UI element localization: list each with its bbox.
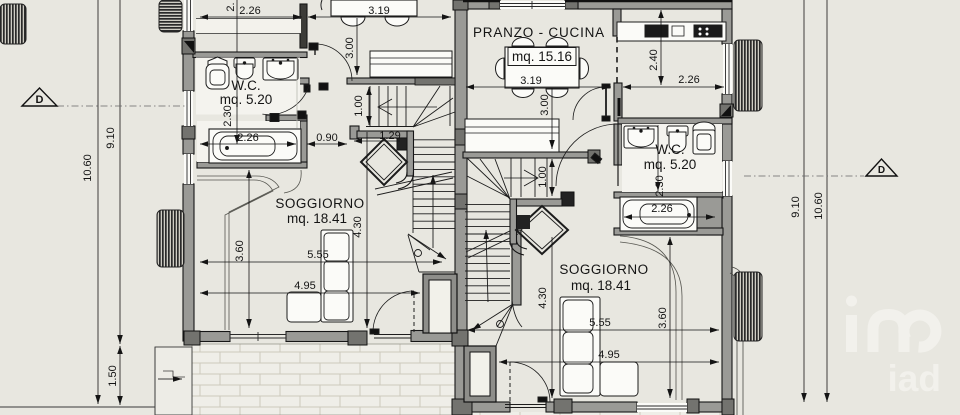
svg-text:mq. 5.20: mq. 5.20 [220,92,273,107]
svg-text:D: D [36,94,44,106]
svg-text:10.60: 10.60 [82,154,94,182]
svg-text:2.40: 2.40 [648,49,660,70]
svg-text:1.00: 1.00 [353,95,365,116]
svg-text:1.00: 1.00 [537,166,549,187]
svg-text:3.00: 3.00 [344,37,356,58]
svg-text:W.C.: W.C. [655,142,684,157]
svg-text:mq. 18.41: mq. 18.41 [571,278,631,293]
svg-text:3.60: 3.60 [234,240,246,261]
svg-text:PRANZO - CUCINA: PRANZO - CUCINA [473,25,605,40]
svg-text:2.26: 2.26 [678,74,699,86]
svg-text:1.50: 1.50 [107,365,119,386]
svg-text:1.29: 1.29 [379,130,400,142]
svg-text:9.10: 9.10 [790,196,802,217]
svg-text:SOGGIORNO: SOGGIORNO [559,262,648,277]
svg-text:W.C.: W.C. [231,78,260,93]
svg-text:4.95: 4.95 [598,349,619,361]
svg-text:mq. 5.20: mq. 5.20 [644,157,697,172]
svg-text:10.60: 10.60 [813,192,825,220]
svg-text:5.55: 5.55 [589,317,610,329]
svg-text:2.: 2. [225,2,237,11]
svg-text:2.30: 2.30 [654,175,666,196]
svg-text:9.10: 9.10 [105,127,117,148]
svg-text:mq. 15.16: mq. 15.16 [512,49,572,64]
svg-text:iad: iad [888,358,941,399]
svg-text:SOGGIORNO: SOGGIORNO [275,196,364,211]
svg-text:0.90: 0.90 [316,132,337,144]
svg-text:4.30: 4.30 [352,216,364,237]
svg-text:3.19: 3.19 [368,5,389,17]
svg-text:mq. 18.41: mq. 18.41 [287,211,347,226]
svg-text:4.30: 4.30 [537,287,549,308]
svg-text:3.19: 3.19 [520,75,541,87]
svg-text:2.26: 2.26 [651,203,672,215]
svg-text:2.30: 2.30 [222,105,234,126]
svg-text:3.00: 3.00 [539,94,551,115]
svg-text:5.55: 5.55 [307,249,328,261]
svg-text:2.26: 2.26 [237,132,258,144]
svg-text:D: D [878,165,885,176]
svg-text:2.26: 2.26 [239,5,260,17]
svg-text:3.60: 3.60 [657,307,669,328]
svg-text:4.95: 4.95 [294,280,315,292]
